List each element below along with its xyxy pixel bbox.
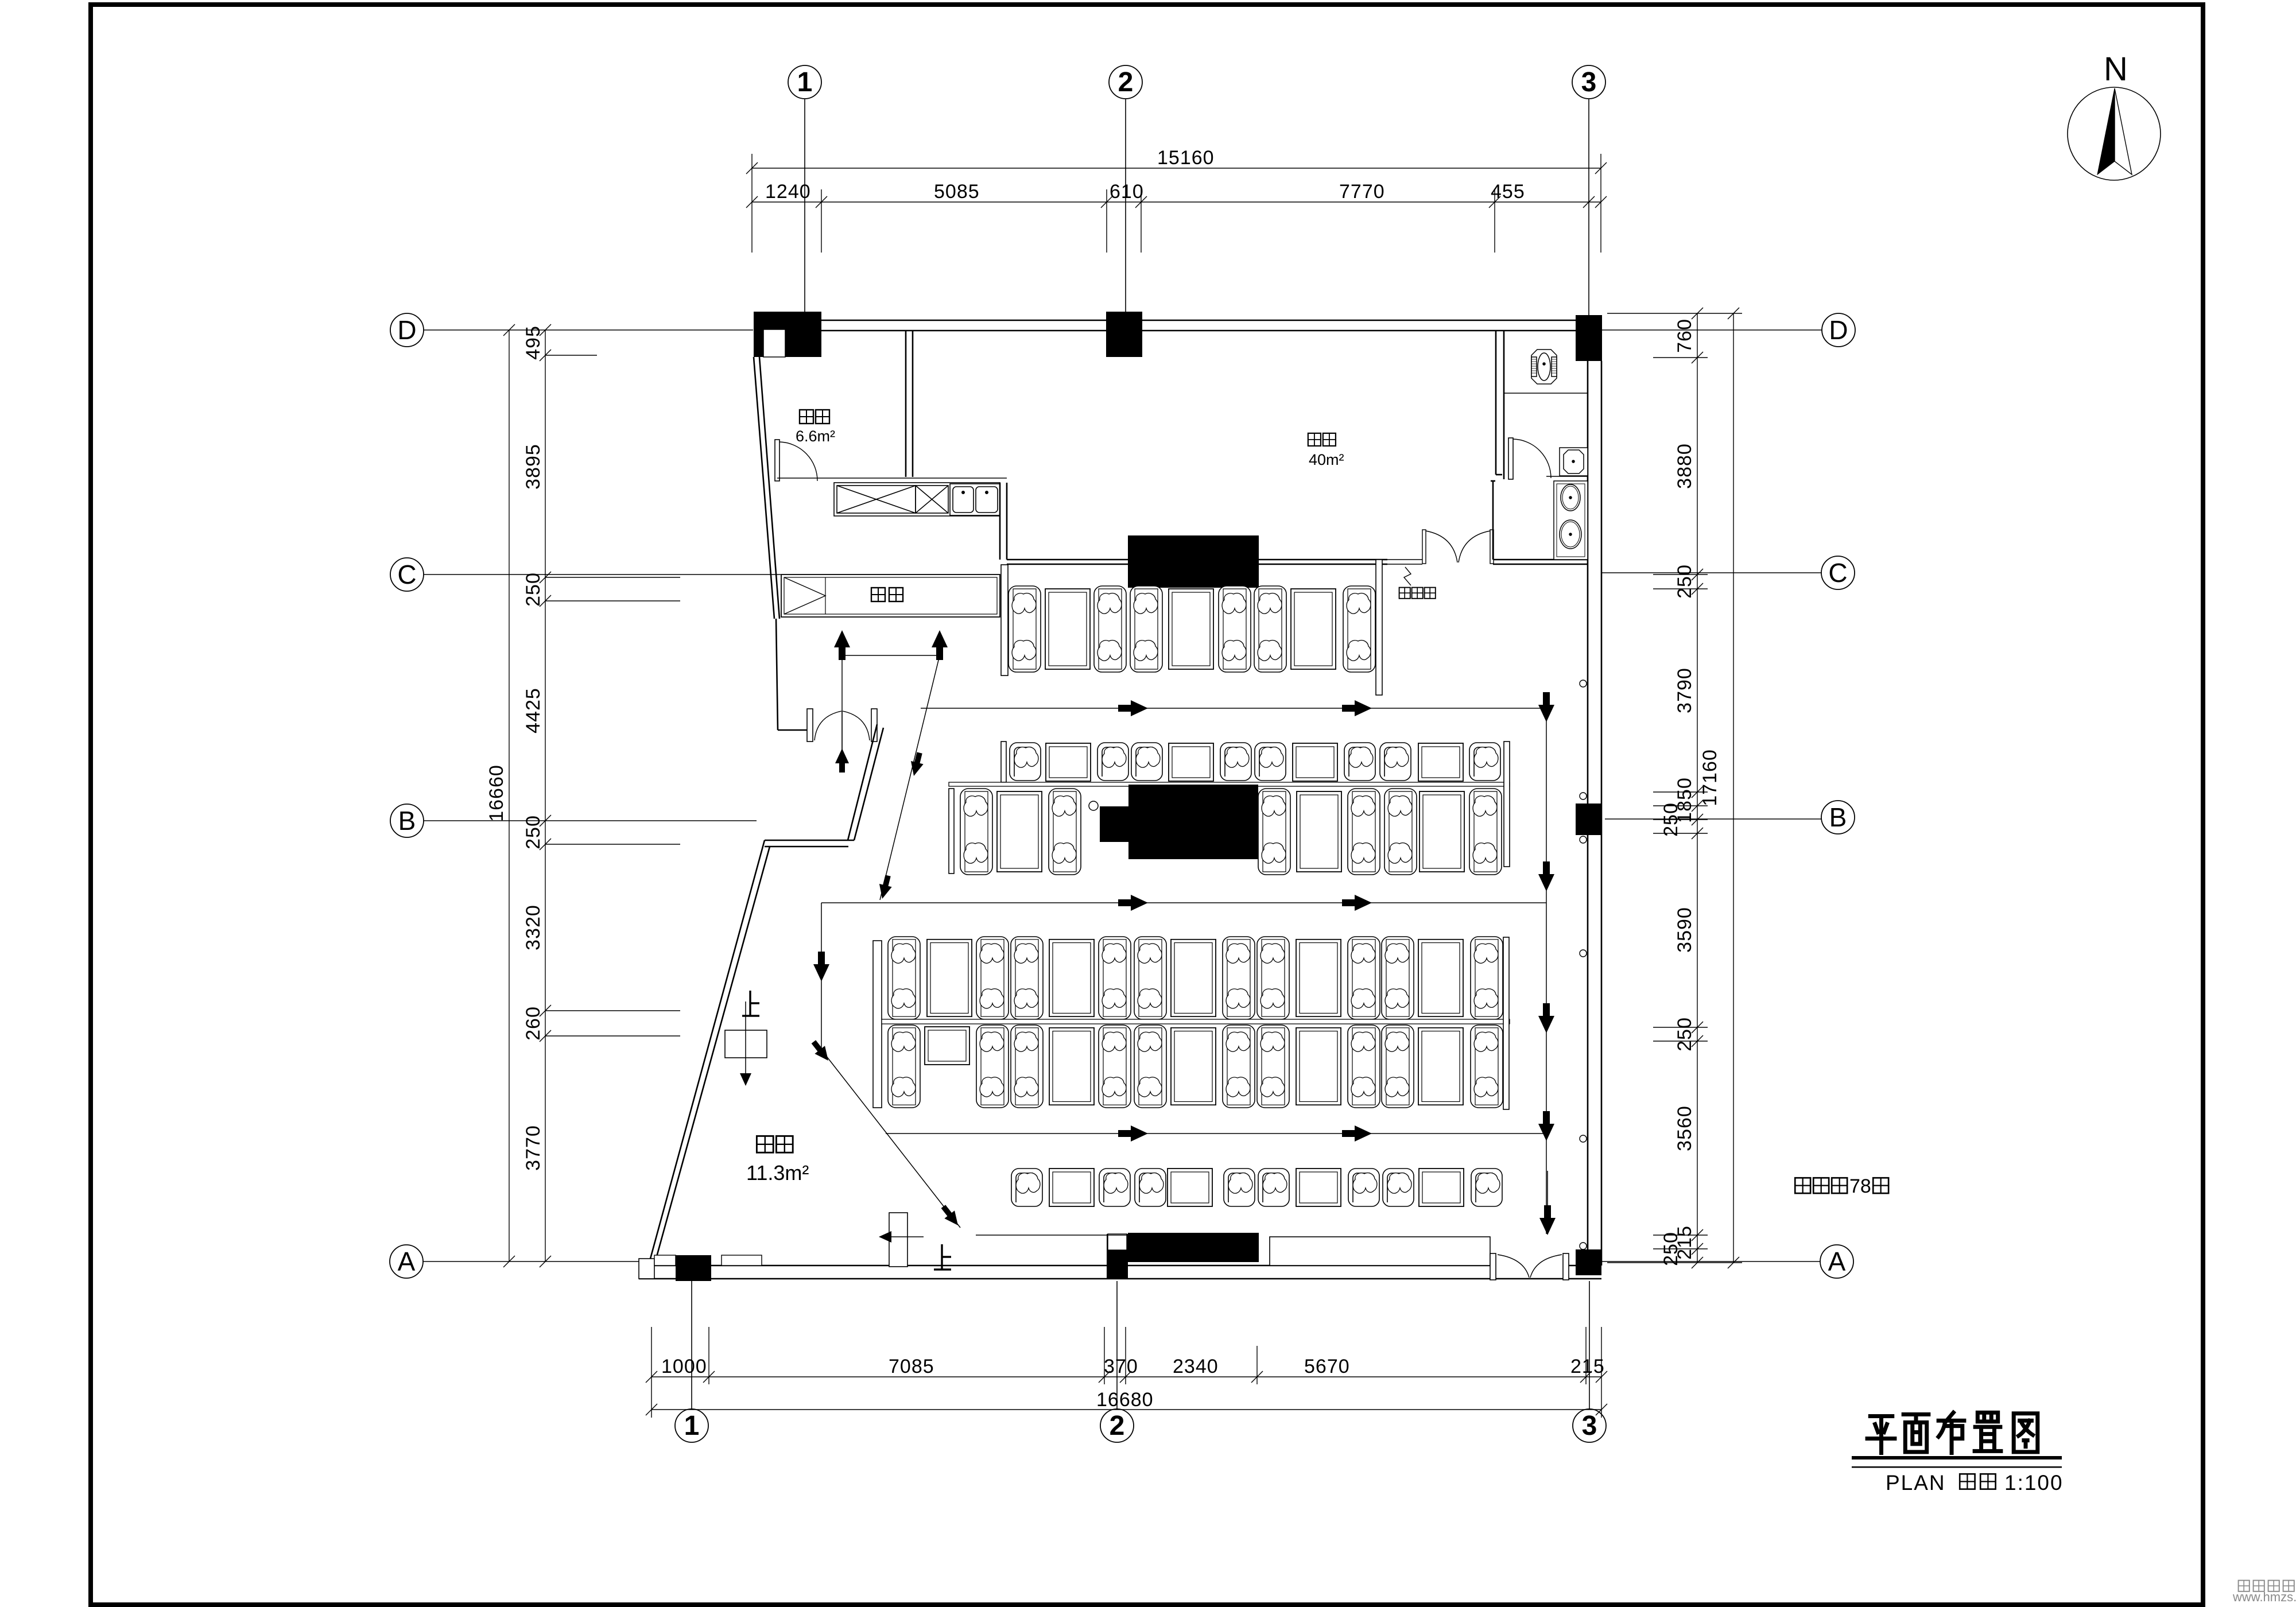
svg-text:16660: 16660 — [486, 764, 507, 822]
svg-text:6.6m²: 6.6m² — [796, 428, 835, 445]
svg-text:250: 250 — [1660, 1232, 1682, 1266]
svg-text:1:100: 1:100 — [2004, 1471, 2064, 1495]
svg-text:1000: 1000 — [661, 1356, 707, 1377]
svg-text:16680: 16680 — [1096, 1389, 1154, 1411]
svg-text:40m²: 40m² — [1309, 451, 1344, 468]
svg-text:D: D — [1829, 315, 1848, 345]
svg-text:C: C — [397, 560, 416, 589]
svg-text:4425: 4425 — [522, 688, 544, 733]
svg-text:3895: 3895 — [522, 444, 544, 490]
svg-text:250: 250 — [1660, 802, 1682, 837]
svg-text:215: 215 — [1570, 1356, 1605, 1377]
svg-text:C: C — [1828, 558, 1847, 588]
svg-text:7085: 7085 — [889, 1356, 934, 1377]
svg-text:7770: 7770 — [1339, 181, 1385, 203]
svg-text:www.hmzs.net: www.hmzs.net — [2232, 1590, 2296, 1604]
svg-text:11.3m²: 11.3m² — [746, 1161, 809, 1185]
svg-text:5670: 5670 — [1304, 1356, 1350, 1377]
svg-text:2: 2 — [1118, 67, 1134, 98]
svg-text:455: 455 — [1491, 181, 1525, 203]
svg-text:A: A — [1828, 1247, 1846, 1276]
svg-text:3: 3 — [1581, 67, 1597, 98]
svg-text:3560: 3560 — [1674, 1105, 1696, 1151]
svg-text:2: 2 — [1110, 1411, 1125, 1441]
svg-text:1: 1 — [684, 1411, 700, 1441]
svg-text:250: 250 — [1674, 1017, 1696, 1051]
svg-text:250: 250 — [522, 572, 544, 607]
svg-text:1: 1 — [797, 67, 813, 98]
svg-text:495: 495 — [522, 325, 544, 360]
svg-text:3770: 3770 — [522, 1125, 544, 1171]
svg-text:3590: 3590 — [1674, 907, 1696, 953]
svg-text:260: 260 — [522, 1006, 544, 1041]
svg-text:N: N — [2104, 51, 2128, 88]
svg-text:610: 610 — [1110, 181, 1144, 203]
svg-text:B: B — [398, 806, 416, 836]
svg-text:3790: 3790 — [1674, 667, 1696, 713]
svg-text:370: 370 — [1104, 1356, 1138, 1377]
svg-text:3320: 3320 — [522, 905, 544, 950]
svg-text:760: 760 — [1674, 319, 1696, 353]
svg-text:1240: 1240 — [765, 181, 811, 203]
svg-text:A: A — [398, 1247, 416, 1276]
svg-text:B: B — [1829, 802, 1847, 832]
svg-text:3: 3 — [1582, 1411, 1597, 1441]
svg-text:PLAN: PLAN — [1886, 1471, 1946, 1495]
svg-text:3880: 3880 — [1674, 443, 1696, 489]
svg-text:5085: 5085 — [934, 181, 980, 203]
svg-text:17160: 17160 — [1699, 749, 1721, 806]
svg-text:15160: 15160 — [1157, 147, 1215, 169]
svg-text:D: D — [397, 315, 416, 345]
svg-text:250: 250 — [522, 815, 544, 849]
svg-text:250: 250 — [1674, 564, 1696, 599]
svg-text:78: 78 — [1849, 1175, 1871, 1197]
svg-text:2340: 2340 — [1173, 1356, 1219, 1377]
